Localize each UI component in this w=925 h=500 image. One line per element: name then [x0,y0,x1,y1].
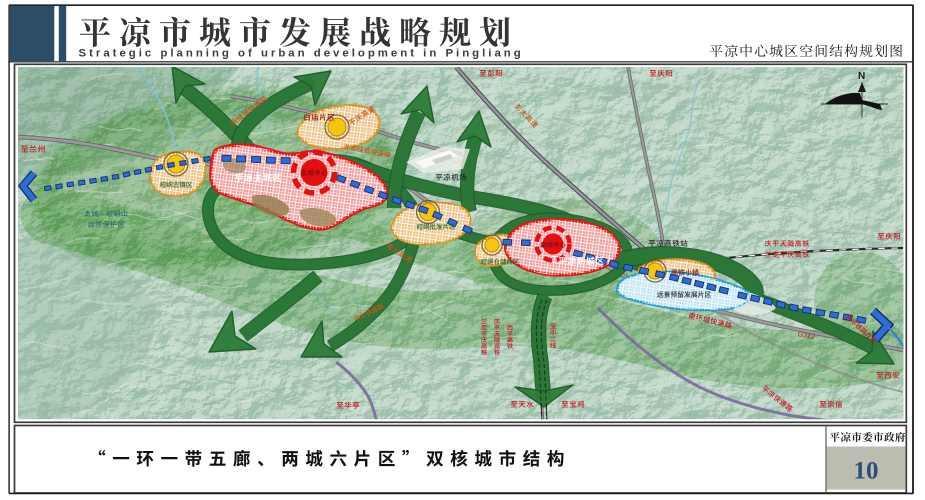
svg-text:10: 10 [854,458,879,485]
svg-text:Strategic planning of urban de: Strategic planning of urban development … [79,48,524,60]
svg-text:N: N [858,71,865,82]
